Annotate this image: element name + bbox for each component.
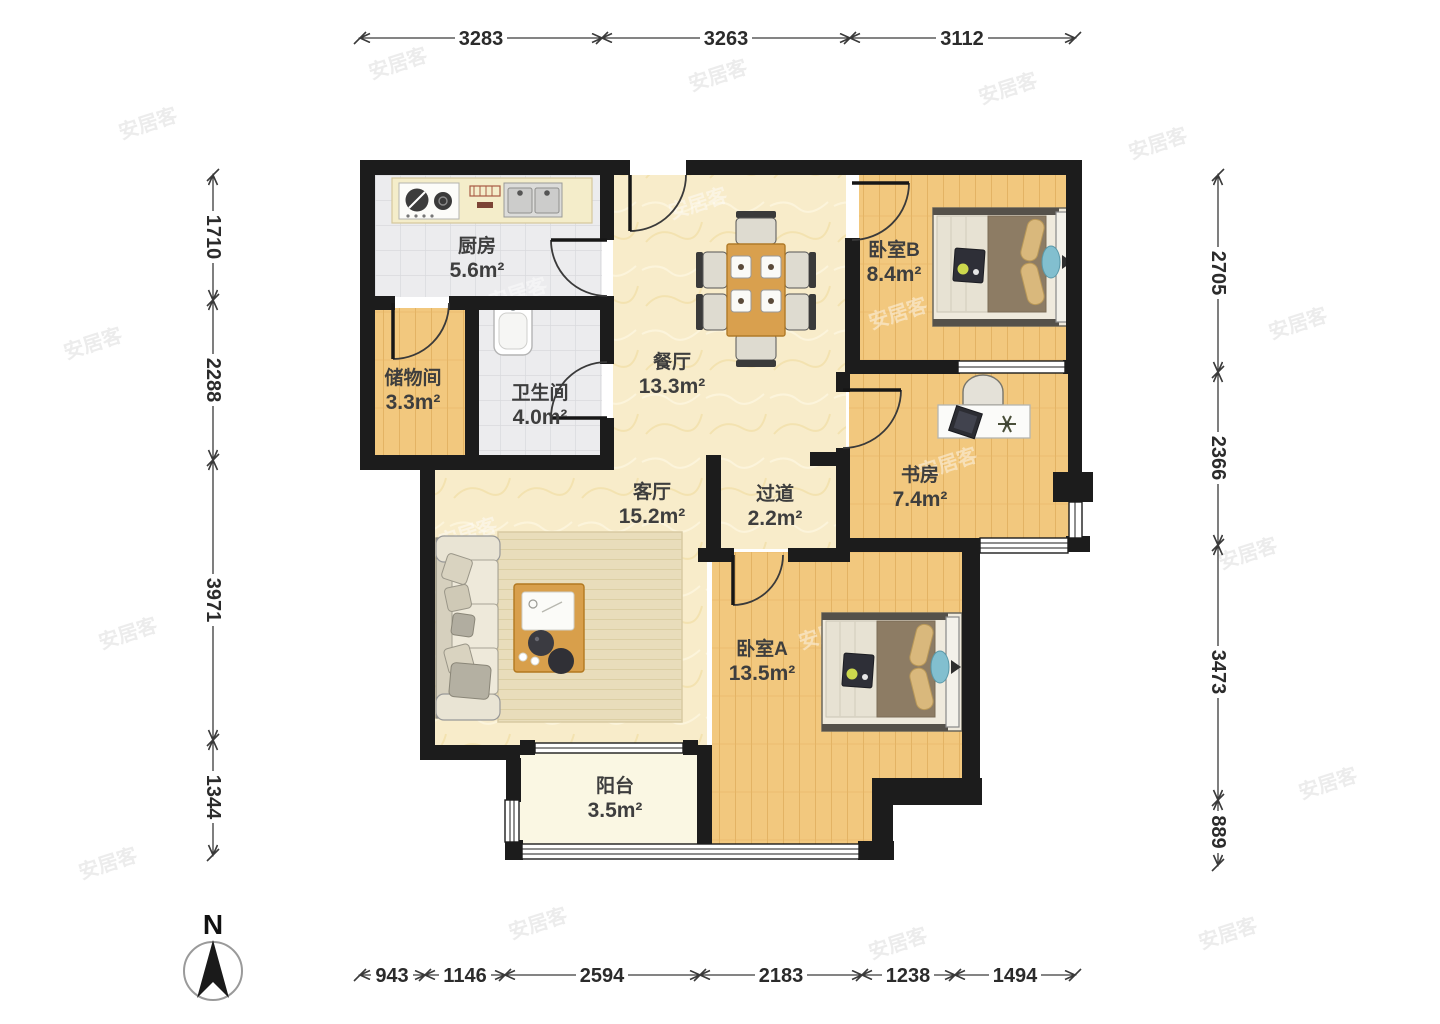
study-side-window bbox=[1069, 502, 1082, 538]
svg-text:安居客: 安居客 bbox=[366, 42, 431, 84]
svg-text:餐厅: 餐厅 bbox=[653, 350, 691, 373]
svg-text:1344: 1344 bbox=[202, 775, 224, 820]
svg-text:安居客: 安居客 bbox=[1216, 532, 1281, 574]
sink-icon bbox=[504, 183, 562, 217]
svg-text:卧室A: 卧室A bbox=[736, 637, 788, 660]
svg-text:安居客: 安居客 bbox=[1266, 302, 1331, 344]
bed-a bbox=[822, 613, 962, 731]
svg-text:过道: 过道 bbox=[756, 482, 794, 505]
svg-text:厨房: 厨房 bbox=[458, 234, 496, 257]
floorplan-drawing: 安居客 安居客 安居客 安居客 安居客 安居客 安居客 安居客 安居客 安居客 … bbox=[0, 0, 1440, 1024]
svg-text:889: 889 bbox=[1207, 815, 1229, 848]
compass: N bbox=[184, 909, 242, 1000]
interior-window bbox=[958, 361, 1065, 373]
svg-text:1710: 1710 bbox=[202, 215, 224, 260]
svg-text:储物间: 储物间 bbox=[384, 366, 441, 389]
svg-text:4.0m²: 4.0m² bbox=[513, 406, 568, 429]
svg-text:卫生间: 卫生间 bbox=[511, 381, 568, 404]
svg-text:13.3m²: 13.3m² bbox=[639, 375, 706, 398]
svg-text:2705: 2705 bbox=[1207, 251, 1229, 296]
sofa bbox=[436, 536, 500, 720]
svg-text:2288: 2288 bbox=[202, 358, 224, 403]
svg-text:3112: 3112 bbox=[940, 28, 983, 50]
study-bay-window bbox=[980, 538, 1068, 553]
svg-text:安居客: 安居客 bbox=[506, 902, 571, 944]
dim-right: 2705 2366 3473 889 bbox=[1207, 169, 1229, 871]
svg-text:13.5m²: 13.5m² bbox=[729, 662, 796, 685]
compass-needle-icon bbox=[197, 940, 229, 998]
svg-text:2183: 2183 bbox=[759, 965, 804, 987]
svg-text:阳台: 阳台 bbox=[596, 774, 634, 797]
dim-top: 3283 3263 3112 bbox=[354, 27, 1081, 50]
svg-text:5.6m²: 5.6m² bbox=[450, 259, 505, 282]
bed-b bbox=[933, 208, 1072, 326]
coffee-table bbox=[514, 584, 584, 674]
svg-text:3.5m²: 3.5m² bbox=[588, 799, 643, 822]
balcony-side-window bbox=[505, 800, 519, 842]
svg-text:7.4m²: 7.4m² bbox=[893, 488, 948, 511]
svg-text:安居客: 安居客 bbox=[686, 54, 751, 96]
svg-text:安居客: 安居客 bbox=[866, 922, 931, 964]
svg-text:1146: 1146 bbox=[443, 965, 486, 987]
svg-text:安居客: 安居客 bbox=[976, 67, 1041, 109]
dim-left: 1710 2288 3971 1344 bbox=[202, 169, 224, 861]
kitchen-counter bbox=[392, 178, 592, 223]
svg-text:3283: 3283 bbox=[459, 28, 504, 50]
svg-text:2366: 2366 bbox=[1207, 436, 1229, 481]
svg-text:3263: 3263 bbox=[704, 28, 749, 50]
svg-text:书房: 书房 bbox=[901, 463, 939, 486]
svg-text:2594: 2594 bbox=[580, 965, 625, 987]
svg-text:3971: 3971 bbox=[202, 578, 224, 623]
svg-text:安居客: 安居客 bbox=[61, 322, 126, 364]
balcony-sliding-door bbox=[535, 743, 683, 753]
floorplan-page: 安居客 安居客 安居客 安居客 安居客 安居客 安居客 安居客 安居客 安居客 … bbox=[0, 0, 1440, 1024]
svg-text:安居客: 安居客 bbox=[1126, 122, 1191, 164]
svg-text:1494: 1494 bbox=[993, 965, 1038, 987]
svg-text:8.4m²: 8.4m² bbox=[867, 263, 922, 286]
desk-chair bbox=[963, 375, 1003, 405]
svg-text:943: 943 bbox=[375, 965, 408, 987]
svg-text:客厅: 客厅 bbox=[633, 480, 671, 503]
dim-bottom: 943 1146 2594 2183 1238 1494 bbox=[354, 964, 1081, 987]
svg-text:15.2m²: 15.2m² bbox=[619, 505, 686, 528]
balcony-front-window bbox=[522, 844, 859, 859]
svg-text:安居客: 安居客 bbox=[76, 842, 141, 884]
balcony-floor bbox=[520, 750, 698, 845]
svg-text:卧室B: 卧室B bbox=[868, 238, 920, 261]
svg-text:安居客: 安居客 bbox=[1296, 762, 1361, 804]
compass-north-label: N bbox=[203, 909, 223, 940]
svg-text:2.2m²: 2.2m² bbox=[748, 507, 803, 530]
svg-text:安居客: 安居客 bbox=[96, 612, 161, 654]
svg-text:1238: 1238 bbox=[886, 965, 931, 987]
svg-text:3.3m²: 3.3m² bbox=[386, 391, 441, 414]
svg-text:3473: 3473 bbox=[1207, 650, 1229, 695]
svg-text:安居客: 安居客 bbox=[1196, 912, 1261, 954]
svg-text:安居客: 安居客 bbox=[116, 102, 181, 144]
